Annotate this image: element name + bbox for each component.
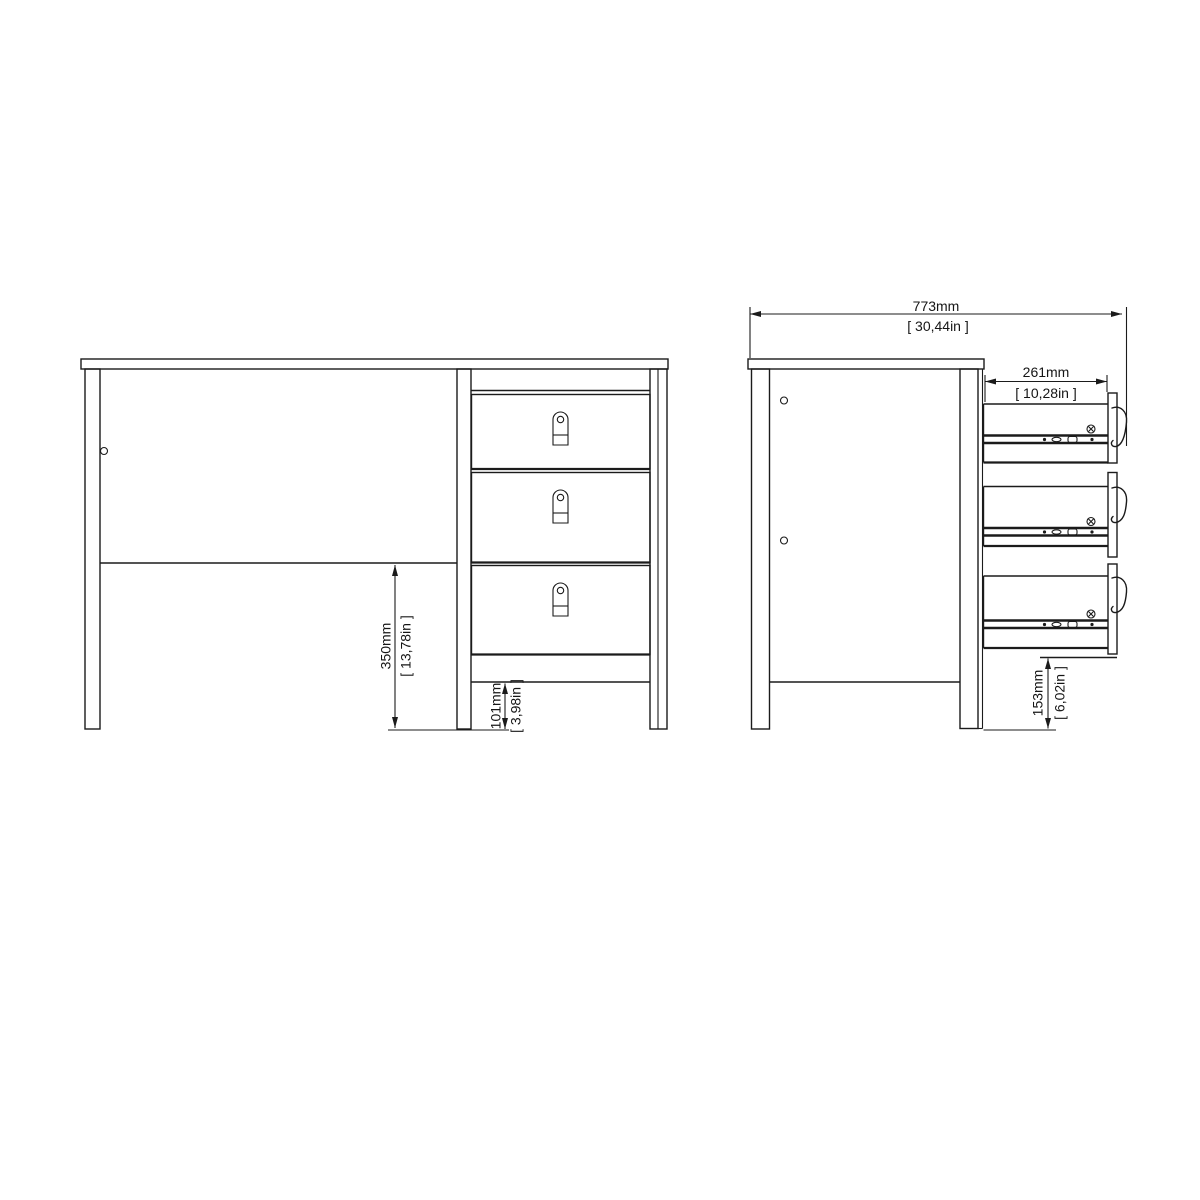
dim-101mm-label: 101mm	[488, 683, 504, 730]
side-drawer-3	[983, 564, 1127, 658]
side-view: 773mm [ 30,44in ] 261mm [ 10,28in ] 153m…	[748, 298, 1127, 730]
drawer-2-front-panel	[1108, 473, 1117, 558]
side-drawer-2	[983, 473, 1127, 558]
drawer-2-slide-rail	[983, 518, 1108, 536]
drawer-1-slide-rail	[983, 425, 1108, 443]
cam-hole-upper	[781, 397, 788, 404]
side-desktop	[748, 359, 984, 369]
side-front-leg	[960, 369, 978, 729]
dimension-drawer-bottom-clearance: 153mm [ 6,02in ]	[984, 659, 1068, 731]
drawer-unit-left-stile	[457, 369, 471, 729]
front-drawer-2	[472, 473, 651, 563]
drawer-1-strap-handle-side	[1111, 407, 1126, 446]
dim-101mm-inches-label: [ 3,98in ]	[508, 679, 524, 733]
side-drawer-1	[983, 393, 1127, 463]
cam-hole-lower	[781, 537, 788, 544]
front-desktop	[81, 359, 668, 369]
drawer-1-front-panel	[1108, 393, 1117, 463]
dim-773mm-inches-label: [ 30,44in ]	[907, 318, 969, 334]
technical-drawing-page: 350mm [ 13,78in ] 101mm [ 3,98in ]	[0, 0, 1200, 1200]
drawer-3-strap-handle-side	[1111, 577, 1126, 612]
front-view: 350mm [ 13,78in ] 101mm [ 3,98in ]	[81, 359, 668, 733]
front-left-leg	[85, 369, 100, 729]
dim-773mm-label: 773mm	[913, 298, 960, 314]
dim-153mm-label: 153mm	[1030, 670, 1046, 717]
drawer-1-handle	[553, 412, 568, 445]
front-drawer-3	[472, 566, 651, 655]
dim-350mm-inches-label: [ 13,78in ]	[398, 615, 414, 677]
side-back-leg	[752, 369, 770, 729]
dimension-drawer-extension: 261mm [ 10,28in ]	[985, 364, 1107, 402]
drawer-2-handle	[553, 490, 568, 523]
dim-261mm-label: 261mm	[1023, 364, 1070, 380]
dim-153mm-inches-label: [ 6,02in ]	[1052, 666, 1068, 720]
drawer-3-slide-rail	[983, 610, 1108, 628]
dimension-base-rail-clearance: 101mm [ 3,98in ]	[488, 679, 524, 733]
dimension-overall-depth: 773mm [ 30,44in ]	[750, 298, 1127, 446]
drawer-3-handle	[553, 583, 568, 616]
desk-dimension-drawing: 350mm [ 13,78in ] 101mm [ 3,98in ]	[0, 0, 1200, 1200]
dim-261mm-inches-label: [ 10,28in ]	[1015, 385, 1077, 401]
drawer-2-strap-handle-side	[1111, 487, 1126, 522]
dim-350mm-label: 350mm	[378, 623, 394, 670]
cam-hole-front	[101, 448, 108, 455]
front-drawer-1	[472, 395, 651, 470]
